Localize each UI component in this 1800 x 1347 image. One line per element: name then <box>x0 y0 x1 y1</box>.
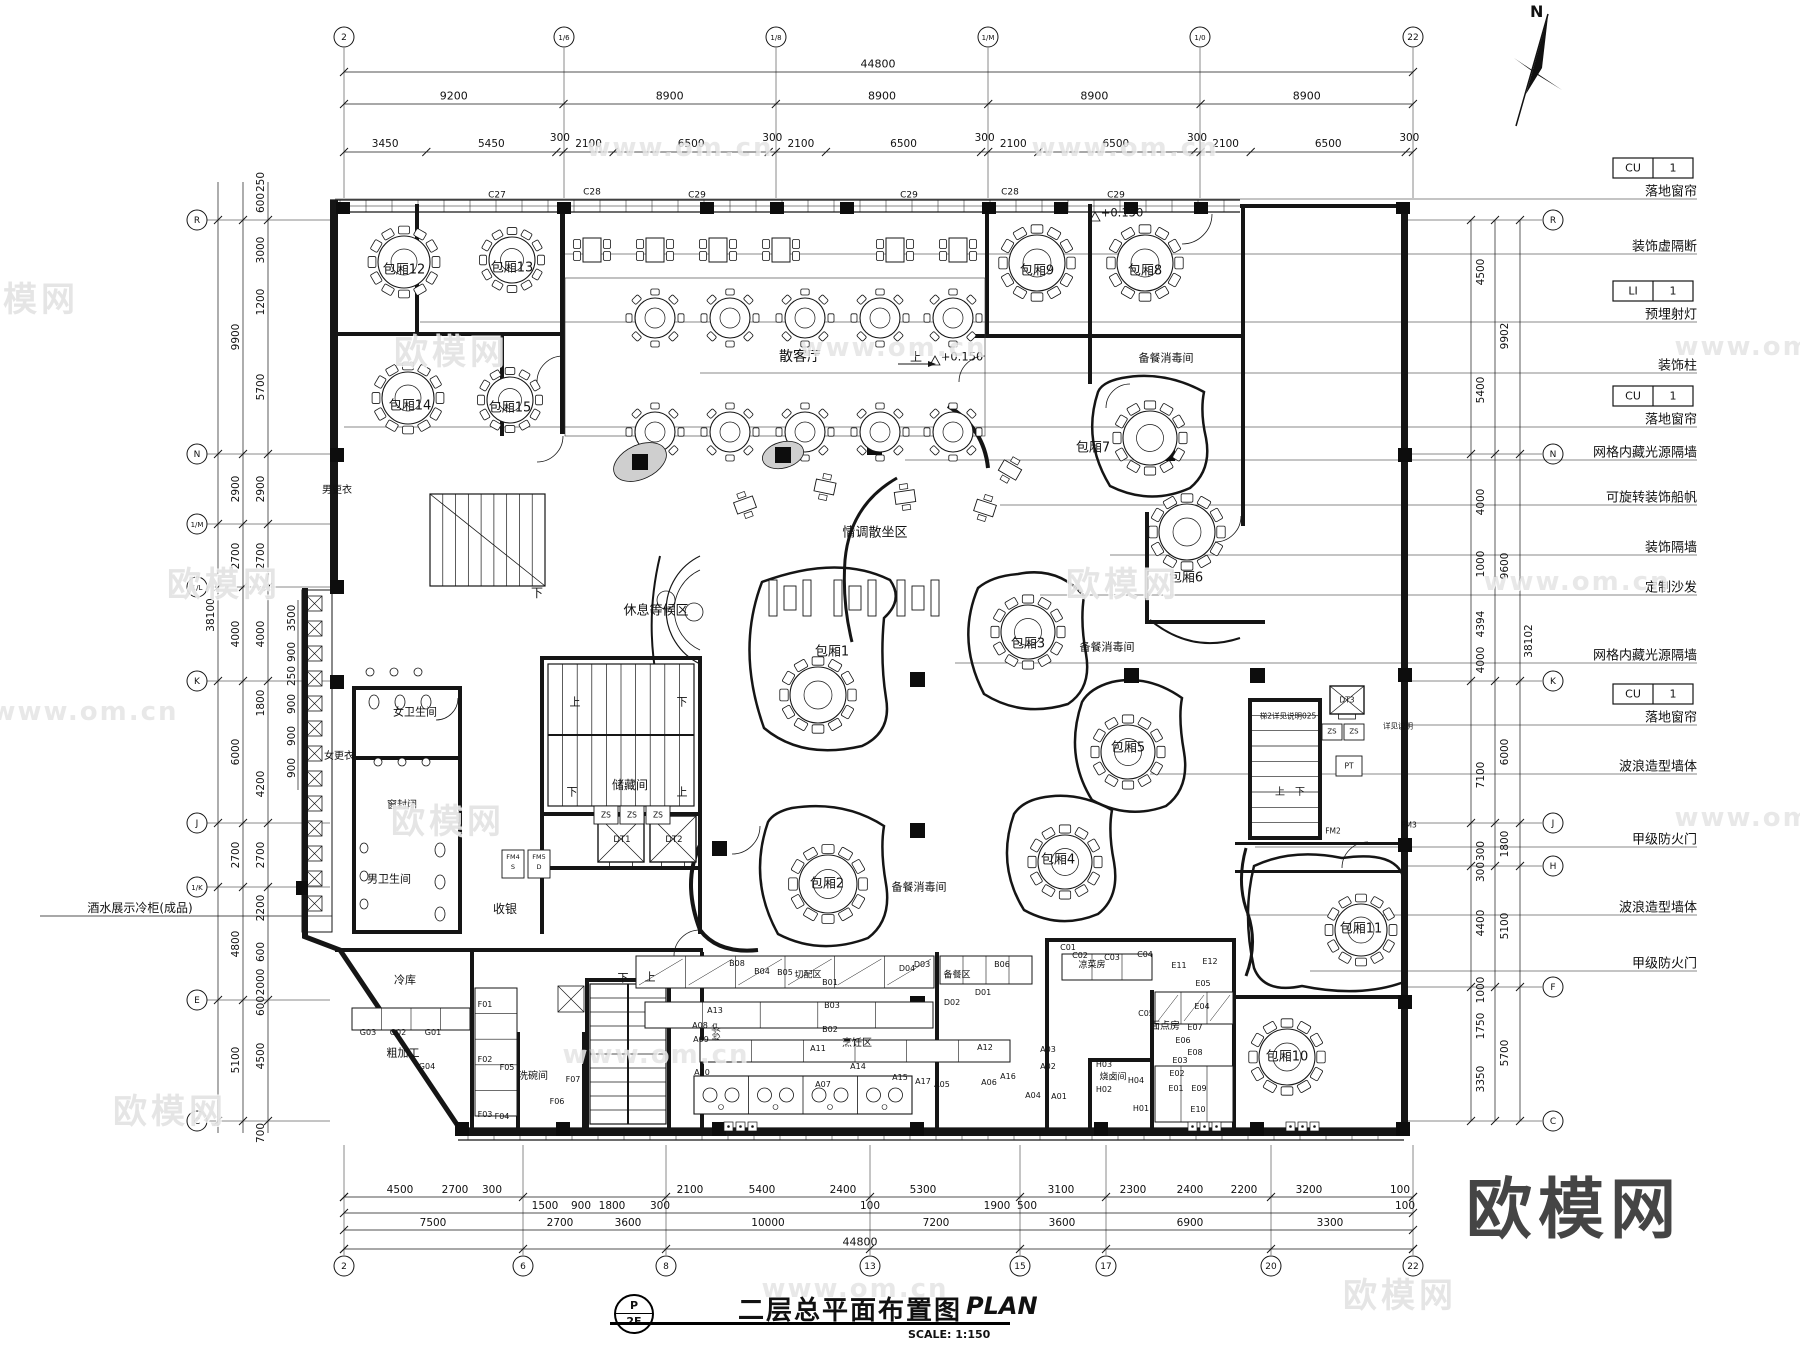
title-block: P 2F 二层总平面布置图 PLAN SCALE: 1:150 <box>598 1288 1018 1342</box>
column <box>1398 838 1412 852</box>
grid-bubble-label: 2 <box>341 33 347 43</box>
urinal <box>360 843 368 853</box>
grid-bubble-label: J <box>1551 819 1555 829</box>
chair <box>1094 856 1102 867</box>
chair <box>877 240 884 249</box>
chair <box>848 689 856 701</box>
chair <box>930 409 940 419</box>
wall <box>1235 870 1407 873</box>
column <box>1194 202 1208 214</box>
chair <box>949 403 957 409</box>
chair <box>632 295 642 305</box>
chair <box>492 280 504 291</box>
chair <box>403 362 414 370</box>
column <box>910 823 925 838</box>
column <box>1124 668 1139 683</box>
round-table <box>378 236 430 288</box>
vent-dot <box>1215 1125 1218 1128</box>
equipment-box <box>594 806 618 824</box>
equipment-box <box>528 850 550 878</box>
booth-bench <box>868 580 876 616</box>
grid-bubble-label: C <box>1550 1117 1556 1127</box>
chair <box>1281 1019 1293 1027</box>
counter <box>475 988 517 1116</box>
chair <box>744 511 753 518</box>
round-table <box>710 412 750 452</box>
chair <box>626 314 632 322</box>
chair <box>707 295 717 305</box>
chair <box>730 240 737 249</box>
chair <box>507 286 517 293</box>
chair <box>966 295 976 305</box>
chair <box>1031 225 1043 233</box>
column <box>556 1122 570 1136</box>
chair <box>743 331 753 341</box>
chair <box>432 257 440 268</box>
chair <box>780 689 788 701</box>
chair <box>1325 925 1333 936</box>
sink <box>374 758 382 766</box>
chair <box>907 252 914 261</box>
booth-table <box>912 586 924 610</box>
chair <box>436 393 444 404</box>
chair <box>903 428 909 436</box>
chair <box>851 428 857 436</box>
chair <box>604 240 611 249</box>
wall <box>1088 1058 1152 1062</box>
chair <box>730 252 737 261</box>
chair <box>857 445 867 455</box>
chair <box>707 331 717 341</box>
round-table <box>1009 235 1065 291</box>
grid-bubble-label: 15 <box>1014 1262 1025 1272</box>
square-table <box>709 238 727 262</box>
grid-bubble-label: 1/L <box>192 584 203 592</box>
chair <box>776 428 782 436</box>
door-arc <box>732 826 760 854</box>
chair <box>1139 225 1151 233</box>
door-arc <box>537 356 563 382</box>
grid-bubble-label: C <box>194 1117 200 1127</box>
sink <box>414 668 422 676</box>
chair <box>903 314 909 322</box>
column <box>1054 202 1068 214</box>
chair <box>505 368 515 375</box>
chair <box>940 240 947 249</box>
chair <box>822 915 834 924</box>
column <box>1094 1122 1108 1136</box>
chair <box>1317 1051 1325 1063</box>
vent-dot <box>1313 1125 1316 1128</box>
chair <box>753 314 759 322</box>
vent-dot <box>739 1125 742 1128</box>
grid-bubble-label: N <box>1550 450 1557 460</box>
wall <box>1045 938 1049 1130</box>
booth-bench <box>897 580 905 616</box>
chair <box>1281 1087 1293 1095</box>
chair <box>372 393 380 404</box>
chair <box>966 409 976 419</box>
round-table <box>1159 504 1215 560</box>
chair <box>940 252 947 261</box>
door-arc <box>436 698 458 720</box>
stair <box>1250 700 1320 838</box>
chair <box>490 369 502 380</box>
column <box>1250 1122 1264 1136</box>
chair <box>876 341 884 347</box>
chair <box>949 289 957 295</box>
equipment-box <box>620 806 644 824</box>
chair <box>1031 293 1043 301</box>
grid-bubble-label: N <box>194 450 201 460</box>
chair <box>1057 626 1065 637</box>
grid-bubble-label: 20 <box>1265 1262 1277 1272</box>
chair <box>701 428 707 436</box>
chair <box>637 252 644 261</box>
chair <box>902 504 911 510</box>
wall <box>352 930 462 934</box>
vent-dot <box>1203 1125 1206 1128</box>
chair <box>1067 257 1075 269</box>
chair <box>1144 401 1155 409</box>
north-label: N <box>1530 2 1543 21</box>
chair <box>930 331 940 341</box>
chair <box>1356 894 1367 902</box>
grid-bubble-label: 1/M <box>982 34 995 42</box>
chair <box>823 473 832 480</box>
chair <box>668 445 678 455</box>
wall <box>540 656 702 660</box>
chair <box>399 226 410 234</box>
round-table <box>790 667 846 723</box>
chair <box>668 295 678 305</box>
chair <box>924 314 930 322</box>
door-arc <box>537 436 563 462</box>
booth-bench <box>931 580 939 616</box>
chair <box>818 445 828 455</box>
wall <box>330 332 563 336</box>
door-arc <box>959 356 985 382</box>
counter <box>645 1002 933 1028</box>
chair <box>701 314 707 322</box>
chair <box>1022 661 1033 669</box>
chair <box>876 455 884 461</box>
chair <box>930 295 940 305</box>
chair <box>726 289 734 295</box>
round-table <box>933 412 973 452</box>
chair <box>1356 958 1367 966</box>
plan-drawing: 21/61/81/M1/0222681315172022RN1/M1/LKJ1/… <box>0 0 1800 1347</box>
chair <box>481 240 492 252</box>
wall <box>1240 204 1407 208</box>
chair <box>857 295 867 305</box>
chair <box>700 252 707 261</box>
round-table <box>1259 1029 1315 1085</box>
square-table <box>583 238 601 262</box>
chair <box>782 295 792 305</box>
booth-bench <box>769 580 777 616</box>
wall <box>352 686 356 934</box>
round-table <box>710 298 750 338</box>
column <box>700 202 714 214</box>
chair <box>949 455 957 461</box>
elevator-door <box>1339 714 1356 719</box>
door-arc <box>1342 842 1368 868</box>
grid-bubble-label: 6 <box>520 1262 526 1272</box>
toilet <box>435 843 445 857</box>
wall <box>1241 206 1245 526</box>
small-table <box>894 490 915 505</box>
chair <box>999 257 1007 269</box>
detail-bubble: P 2F <box>614 1294 654 1334</box>
chair <box>857 409 867 419</box>
chair <box>801 403 809 409</box>
sink <box>422 758 430 766</box>
brand-watermark: 欧模网 <box>1466 1156 1682 1252</box>
chair <box>1091 746 1099 757</box>
wall <box>352 756 462 760</box>
chair <box>793 252 800 261</box>
chair <box>668 331 678 341</box>
chair <box>532 269 543 281</box>
chair <box>1389 925 1397 936</box>
urinal <box>360 899 368 909</box>
small-table <box>814 479 836 495</box>
column <box>1398 668 1412 682</box>
chair <box>1107 257 1115 269</box>
column <box>712 841 727 856</box>
door-arc <box>674 930 700 956</box>
chair <box>776 314 782 322</box>
wall <box>330 200 338 592</box>
chair <box>507 228 517 235</box>
square-table <box>886 238 904 262</box>
round-table <box>1101 725 1155 779</box>
chair <box>966 331 976 341</box>
round-table <box>933 298 973 338</box>
chair <box>859 878 868 890</box>
column <box>910 672 925 687</box>
grid-bubble-label: 1/M <box>191 521 204 529</box>
square-table <box>646 238 664 262</box>
chair <box>667 252 674 261</box>
chair <box>399 290 410 298</box>
grid-bubble-label: R <box>1550 216 1556 226</box>
bubble-bottom: 2F <box>616 1313 652 1328</box>
grid-bubble-label: 1/K <box>191 884 203 892</box>
column <box>1396 202 1410 214</box>
chair <box>368 257 376 268</box>
chair <box>481 269 492 281</box>
chair <box>893 445 903 455</box>
chair <box>1022 595 1033 603</box>
chair <box>851 314 857 322</box>
wall <box>1235 842 1407 845</box>
bubble-top: P <box>616 1299 652 1312</box>
chair <box>668 409 678 419</box>
wall <box>458 686 462 934</box>
round-table <box>860 412 900 452</box>
column <box>1398 995 1412 1009</box>
chair <box>793 240 800 249</box>
grid-bubble-label: 1/0 <box>1194 34 1205 42</box>
chair <box>480 255 487 265</box>
chair <box>632 331 642 341</box>
wall-curve <box>303 936 462 1132</box>
chair <box>403 426 414 434</box>
chair <box>737 491 746 498</box>
chair <box>1059 825 1070 833</box>
north-arrow: N <box>1500 2 1590 132</box>
equipment-box <box>1322 724 1342 740</box>
chair <box>530 380 541 392</box>
sheet-title: 二层总平面布置图 <box>738 1290 962 1327</box>
chair <box>782 409 792 419</box>
wall <box>560 204 565 434</box>
toilet <box>421 695 431 709</box>
booth-bench <box>803 580 811 616</box>
chair <box>1028 856 1036 867</box>
round-table <box>487 377 533 423</box>
chair <box>505 426 515 433</box>
wall <box>1088 338 1092 384</box>
vent-dot <box>727 1125 730 1128</box>
chair <box>478 395 485 405</box>
round-table <box>1038 835 1092 889</box>
chair <box>1149 526 1157 538</box>
chair <box>812 657 824 665</box>
wall <box>1088 1058 1092 1130</box>
chair <box>1217 526 1225 538</box>
chair <box>924 428 930 436</box>
chair <box>651 403 659 409</box>
column <box>557 202 571 214</box>
grid-bubble-label: J <box>195 819 199 829</box>
chair <box>893 409 903 419</box>
chair <box>1157 746 1165 757</box>
chair <box>801 289 809 295</box>
column <box>1396 1122 1410 1136</box>
chair <box>876 289 884 295</box>
toilet <box>395 695 405 709</box>
chair <box>984 494 993 501</box>
chair <box>521 280 533 291</box>
square-table <box>772 238 790 262</box>
chair <box>519 369 531 380</box>
booth-table <box>849 586 861 610</box>
chair <box>976 314 982 322</box>
grid-bubble-label: 1/8 <box>770 34 781 42</box>
sheet-scale: SCALE: 1:150 <box>908 1328 990 1341</box>
sink <box>390 668 398 676</box>
chair <box>667 240 674 249</box>
column <box>336 202 350 214</box>
chair <box>521 229 533 240</box>
chair <box>753 428 759 436</box>
chair <box>812 725 824 733</box>
column <box>1250 668 1265 683</box>
equipment-box <box>1344 724 1364 740</box>
booth-bench <box>834 580 842 616</box>
chair <box>907 240 914 249</box>
chair <box>1139 293 1151 301</box>
vent-dot <box>1289 1125 1292 1128</box>
chair <box>479 409 490 421</box>
chair <box>726 403 734 409</box>
chair <box>949 341 957 347</box>
grid-bubble-label: R <box>194 216 200 226</box>
chair <box>1122 781 1133 789</box>
door-arc <box>1182 214 1212 244</box>
chair <box>1181 494 1193 502</box>
column <box>330 448 344 462</box>
chair <box>700 240 707 249</box>
round-table <box>1123 411 1177 465</box>
north-arrow-icon <box>1500 2 1590 132</box>
chair <box>857 331 867 341</box>
round-table <box>382 372 434 424</box>
column <box>455 1122 469 1136</box>
wall-curve <box>844 478 897 642</box>
wall <box>975 334 1241 338</box>
grid-bubble-label: 8 <box>663 1262 669 1272</box>
chair <box>743 409 753 419</box>
counter <box>1062 954 1152 980</box>
floorplan-sheet: 21/61/81/M1/0222681315172022RN1/M1/LKJ1/… <box>0 0 1800 1347</box>
chair <box>899 484 908 490</box>
wall <box>585 978 589 1128</box>
small-table <box>734 496 757 514</box>
chair <box>822 845 834 854</box>
wall-curve <box>1241 848 1252 976</box>
chair <box>604 252 611 261</box>
chair <box>678 314 684 322</box>
chair <box>651 289 659 295</box>
chair <box>574 252 581 261</box>
round-table <box>799 855 857 913</box>
chair <box>789 878 798 890</box>
wall <box>698 656 702 934</box>
wall <box>1401 206 1408 1128</box>
chair <box>828 314 834 322</box>
chair <box>930 445 940 455</box>
chair <box>626 428 632 436</box>
chair <box>818 331 828 341</box>
chair <box>1249 1051 1257 1063</box>
wall <box>985 204 989 336</box>
round-table <box>489 237 535 283</box>
chair <box>519 420 531 431</box>
chair <box>726 341 734 347</box>
chair <box>743 295 753 305</box>
door-arc <box>1106 384 1130 408</box>
equipment-box <box>1336 756 1362 776</box>
chair <box>707 445 717 455</box>
chair <box>828 428 834 436</box>
toilet <box>435 907 445 921</box>
column <box>1124 202 1138 214</box>
chair <box>479 380 490 392</box>
chair <box>538 255 545 265</box>
chair <box>782 331 792 341</box>
column <box>770 202 784 214</box>
chair <box>1059 891 1070 899</box>
grid-bubble-label: 17 <box>1100 1262 1111 1272</box>
chair <box>818 295 828 305</box>
wall <box>1088 204 1092 336</box>
vent-dot <box>751 1125 754 1128</box>
equipment-box <box>502 850 524 878</box>
